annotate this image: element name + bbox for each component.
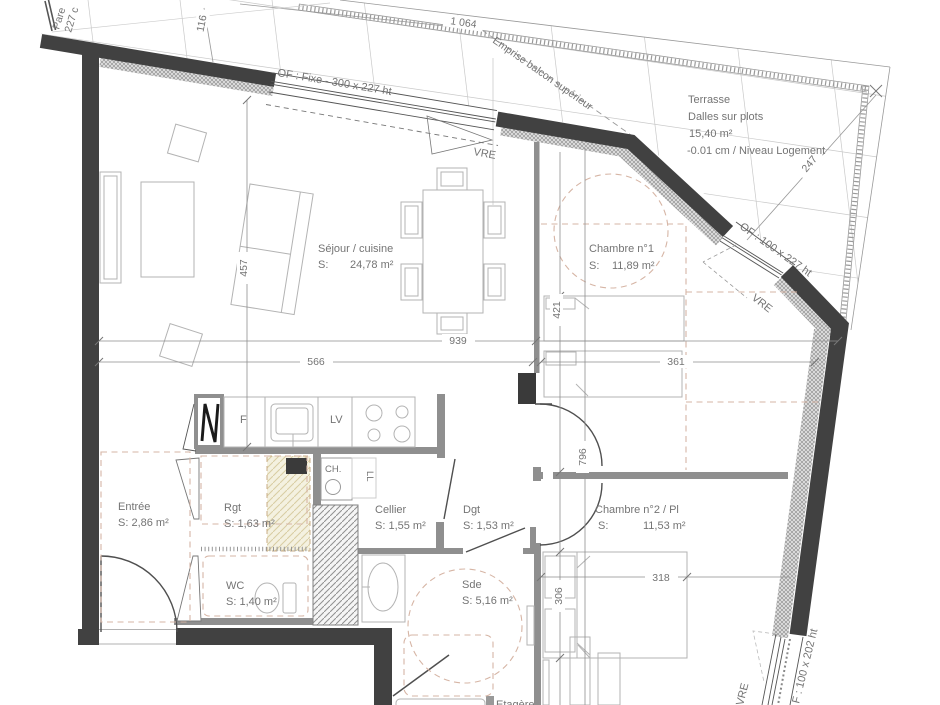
svg-text:S:: S: xyxy=(598,520,608,532)
svg-text:WC: WC xyxy=(226,580,244,592)
svg-text:Terrasse: Terrasse xyxy=(688,94,730,106)
svg-text:S: 5,16 m²: S: 5,16 m² xyxy=(462,595,513,607)
svg-text:Chambre n°2 / Pl: Chambre n°2 / Pl xyxy=(595,504,679,516)
svg-text:306: 306 xyxy=(553,587,565,605)
svg-text:LL: LL xyxy=(364,471,375,482)
svg-text:CH.: CH. xyxy=(325,464,341,475)
svg-text:Chambre n°1: Chambre n°1 xyxy=(589,243,654,255)
svg-text:Sde: Sde xyxy=(462,579,482,591)
svg-text:11,89 m²: 11,89 m² xyxy=(612,260,655,272)
svg-text:Rgt: Rgt xyxy=(224,502,241,514)
svg-text:457: 457 xyxy=(238,259,250,277)
svg-text:Entrée: Entrée xyxy=(118,501,150,513)
svg-text:796: 796 xyxy=(577,448,589,466)
svg-text:S: 1,40 m²: S: 1,40 m² xyxy=(226,596,277,608)
svg-text:421: 421 xyxy=(551,301,563,319)
svg-text:Séjour / cuisine: Séjour / cuisine xyxy=(318,243,393,255)
svg-text:24,78 m²: 24,78 m² xyxy=(350,259,394,271)
svg-text:566: 566 xyxy=(307,356,325,368)
svg-text:361: 361 xyxy=(667,356,685,368)
svg-text:LV: LV xyxy=(330,414,343,426)
svg-text:S:: S: xyxy=(318,259,328,271)
svg-text:15,40 m²: 15,40 m² xyxy=(689,128,733,140)
svg-text:S: 1,55 m²: S: 1,55 m² xyxy=(375,520,426,532)
svg-text:Cellier: Cellier xyxy=(375,504,407,516)
svg-text:Dgt: Dgt xyxy=(463,504,480,516)
svg-text:939: 939 xyxy=(449,335,467,347)
svg-text:S: 1,63 m²: S: 1,63 m² xyxy=(224,518,275,530)
svg-text:S: 2,86 m²: S: 2,86 m² xyxy=(118,517,169,529)
svg-text:Dalles sur plots: Dalles sur plots xyxy=(688,111,764,123)
svg-text:Etagère: Etagère xyxy=(496,699,535,705)
svg-text:-0.01 cm / Niveau Logement: -0.01 cm / Niveau Logement xyxy=(687,145,825,157)
svg-text:11,53 m²: 11,53 m² xyxy=(643,520,686,532)
svg-text:S:: S: xyxy=(589,260,599,272)
svg-text:F: F xyxy=(240,414,247,426)
svg-text:S: 1,53 m²: S: 1,53 m² xyxy=(463,520,514,532)
svg-text:318: 318 xyxy=(652,572,670,584)
